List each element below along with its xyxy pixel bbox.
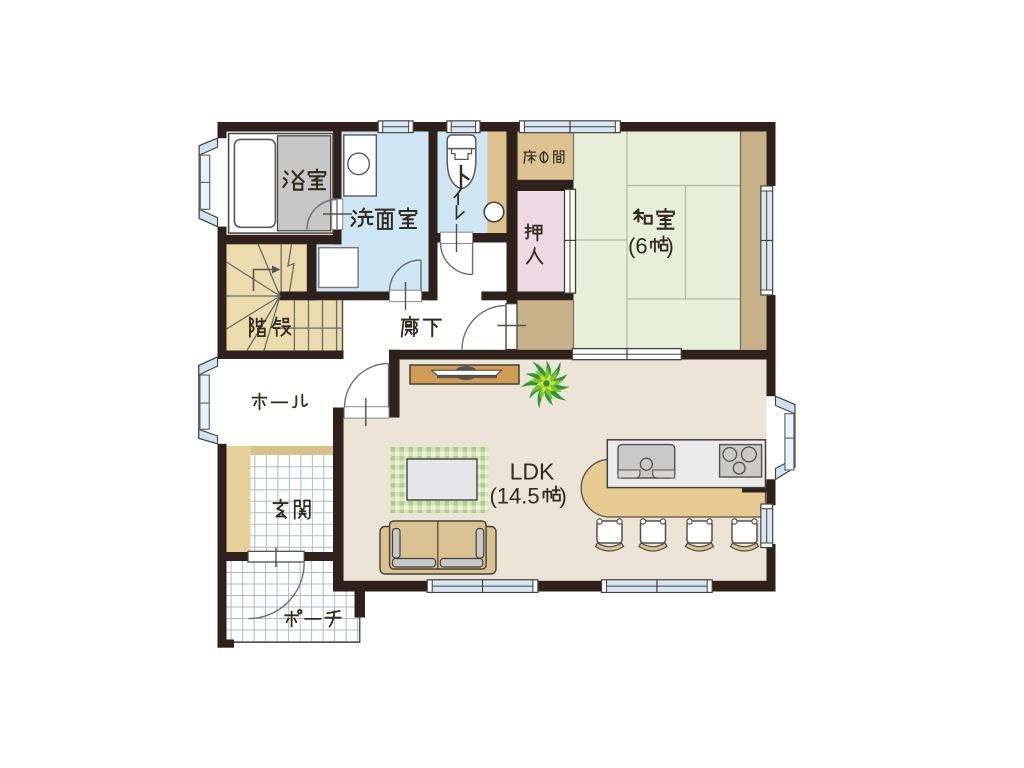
svg-text:(14.5: (14.5 (490, 484, 540, 509)
svg-text:LDK: LDK (510, 458, 555, 484)
svg-text:(6: (6 (628, 233, 648, 258)
svg-text:): ) (667, 233, 674, 258)
svg-text:): ) (560, 484, 567, 509)
